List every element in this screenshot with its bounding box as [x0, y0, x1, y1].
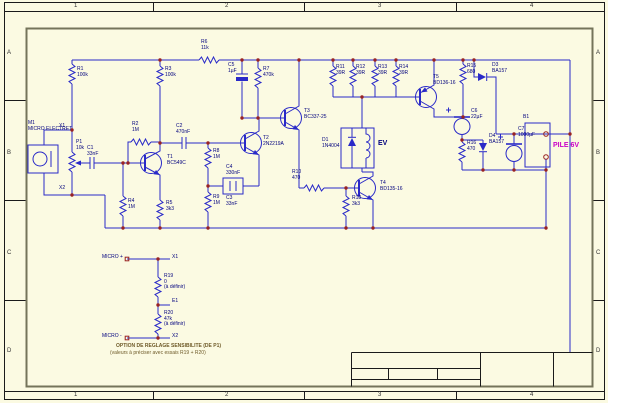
schematic-canvas [0, 0, 640, 403]
schematic-page: 12341234ABCDABCDM1MICRO ELECTRETX1X2R110… [0, 0, 640, 403]
